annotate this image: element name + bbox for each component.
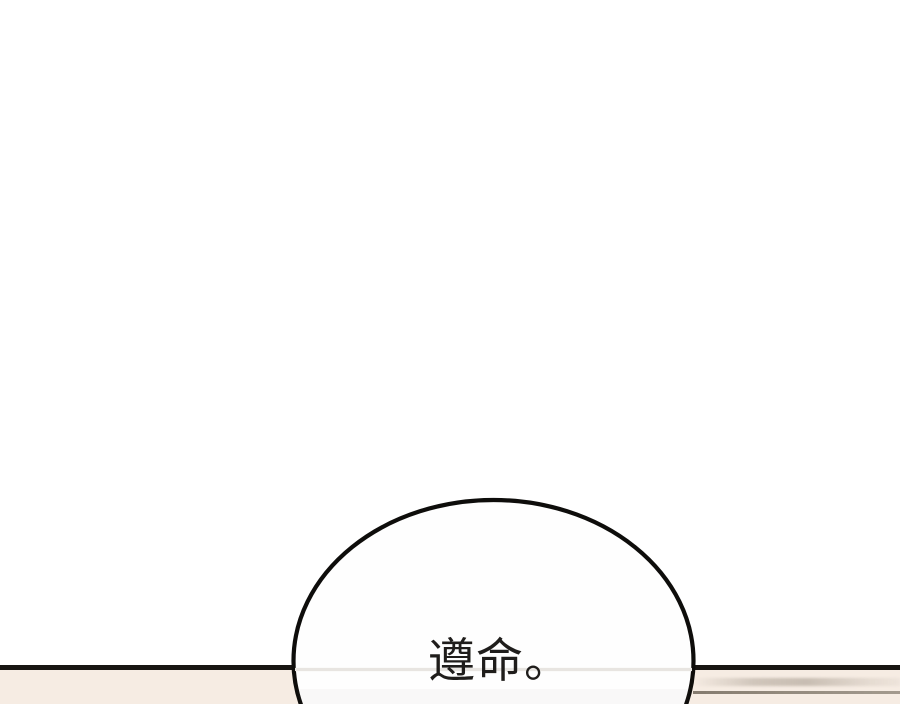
dialogue-text: 遵命。 xyxy=(302,637,698,684)
wood-grain-streak xyxy=(693,678,900,686)
comic-panel: 遵命。 xyxy=(0,0,900,704)
wood-grain-line xyxy=(693,691,900,694)
speech-bubble xyxy=(0,0,900,704)
